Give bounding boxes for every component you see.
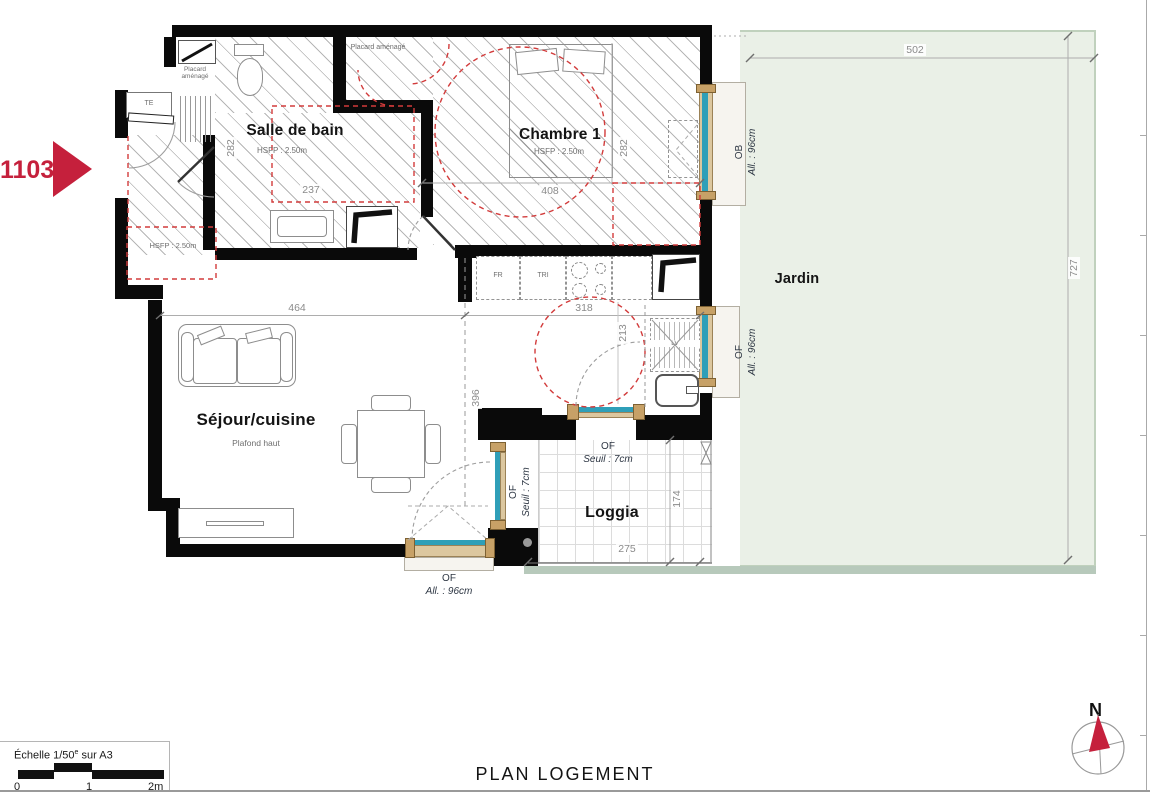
- scale-bar-segment: [54, 763, 92, 772]
- bathroom-label: Salle de bain: [230, 122, 360, 140]
- dim-kitchen-pass: 213: [617, 313, 629, 353]
- scale-bar-segment: [18, 770, 54, 779]
- dim-garden-height: 727: [1068, 238, 1082, 298]
- entry-height-label: HSFP : 2.50m: [133, 241, 213, 250]
- dim-loggia-height: 174: [671, 479, 683, 519]
- dim-loggia-width: 275: [607, 543, 647, 556]
- dim-living-width: 464: [277, 302, 317, 315]
- bedroom-label: Chambre 1: [495, 126, 625, 144]
- compass: N: [1053, 690, 1143, 790]
- living-note-label: Plafond haut: [186, 438, 326, 448]
- dim-bath-height: 282: [225, 128, 237, 168]
- ruler-tick: [1140, 735, 1146, 736]
- floor-plan-page: TE Placard aménagé Placard aménagé FR TR…: [0, 0, 1150, 800]
- dishwasher-cross: [645, 305, 698, 408]
- ruler-tick: [1140, 135, 1146, 136]
- dim-bedroom-width: 408: [530, 185, 570, 198]
- separator-hourglass-icon: [701, 442, 711, 464]
- compass-needle-icon: [1089, 715, 1110, 752]
- bedroom-height-label: HSFP : 2.50m: [504, 147, 614, 156]
- dimension-ticks: [156, 32, 1098, 566]
- ruler-tick: [1140, 635, 1146, 636]
- scale-bar-segment: [92, 770, 164, 779]
- window-label-of-loggia-top: OFSeuil : 7cm: [570, 440, 646, 466]
- page-right-border: [1146, 0, 1147, 790]
- dim-kitchen-width: 318: [564, 302, 604, 315]
- window-label-of-kitchen: OFAll. : 96cm: [733, 297, 767, 407]
- ruler-tick: [1140, 535, 1146, 536]
- window-label-ob-bedroom: OBAll. : 96cm: [733, 97, 767, 207]
- garden-label: Jardin: [737, 271, 857, 287]
- dim-bedroom-height: 282: [618, 128, 630, 168]
- dim-garden-width: 502: [895, 44, 935, 57]
- page-bottom-border: [0, 790, 1150, 792]
- ruler-tick: [1140, 435, 1146, 436]
- dim-bath-width: 237: [291, 184, 331, 197]
- unit-arrow-icon: [53, 141, 92, 197]
- duct-corner-glyphs: [182, 44, 696, 292]
- living-label: Séjour/cuisine: [186, 410, 326, 430]
- dimension-lines: [160, 36, 1094, 562]
- compass-north-label: N: [1089, 700, 1102, 720]
- dim-kitchen-height: 396: [470, 378, 482, 418]
- red-dashed-zones: [127, 44, 700, 407]
- plan-linework: [0, 0, 1150, 800]
- scale-caption: Échelle 1/50e sur A3: [14, 749, 113, 762]
- ruler-tick: [1140, 235, 1146, 236]
- window-label-of-living-bottom: OFAll. : 96cm: [404, 572, 494, 598]
- window-label-of-loggia-side: OFSeuil : 7cm: [507, 440, 539, 544]
- page-title: PLAN LOGEMENT: [420, 764, 710, 785]
- bathroom-height-label: HSFP : 2.50m: [227, 146, 337, 155]
- ruler-tick: [1140, 335, 1146, 336]
- unit-number: 1103: [0, 156, 48, 185]
- loggia-label: Loggia: [552, 504, 672, 522]
